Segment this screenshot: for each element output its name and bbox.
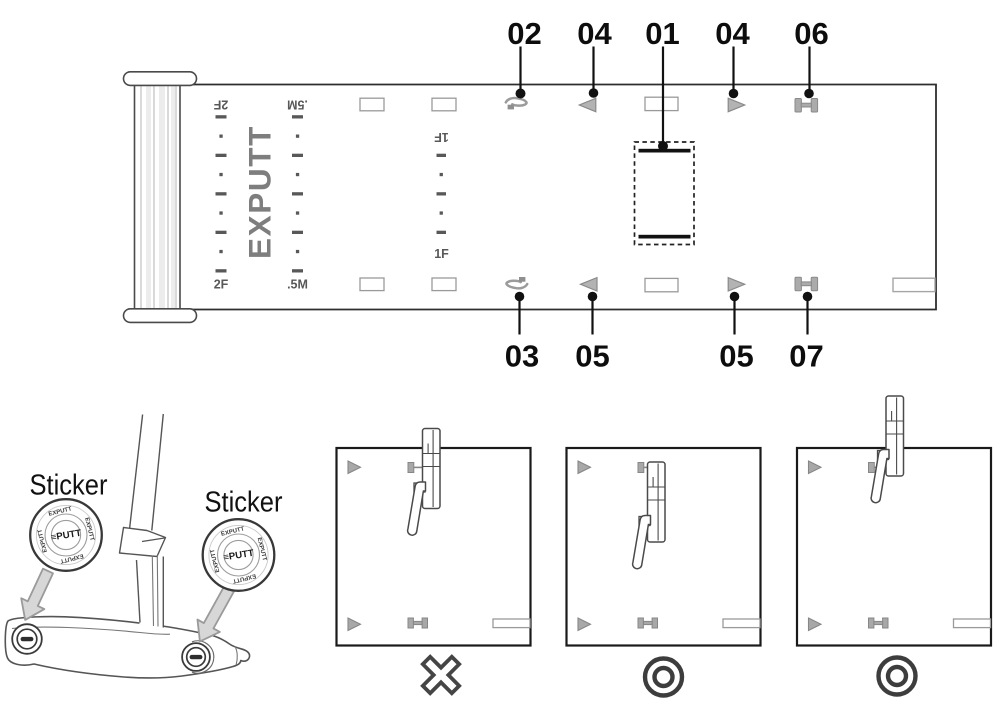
svg-text:.5M: .5M (287, 98, 308, 112)
svg-text:06: 06 (794, 16, 828, 51)
svg-text:1F: 1F (434, 247, 449, 261)
svg-text:2F: 2F (214, 277, 229, 291)
svg-text:1F: 1F (434, 130, 449, 144)
svg-text:Sticker: Sticker (30, 470, 108, 502)
svg-text:2F: 2F (213, 98, 228, 112)
svg-text:01: 01 (645, 16, 679, 51)
svg-text:05: 05 (575, 339, 609, 374)
svg-text:Sticker: Sticker (205, 487, 283, 519)
svg-text:04: 04 (577, 16, 612, 51)
svg-text:07: 07 (789, 339, 823, 374)
svg-text:04: 04 (715, 16, 750, 51)
svg-text:02: 02 (507, 16, 541, 51)
svg-text:.5M: .5M (287, 277, 308, 291)
svg-text:03: 03 (505, 339, 539, 374)
svg-text:EXPUTT: EXPUTT (242, 125, 278, 259)
svg-text:05: 05 (719, 339, 753, 374)
